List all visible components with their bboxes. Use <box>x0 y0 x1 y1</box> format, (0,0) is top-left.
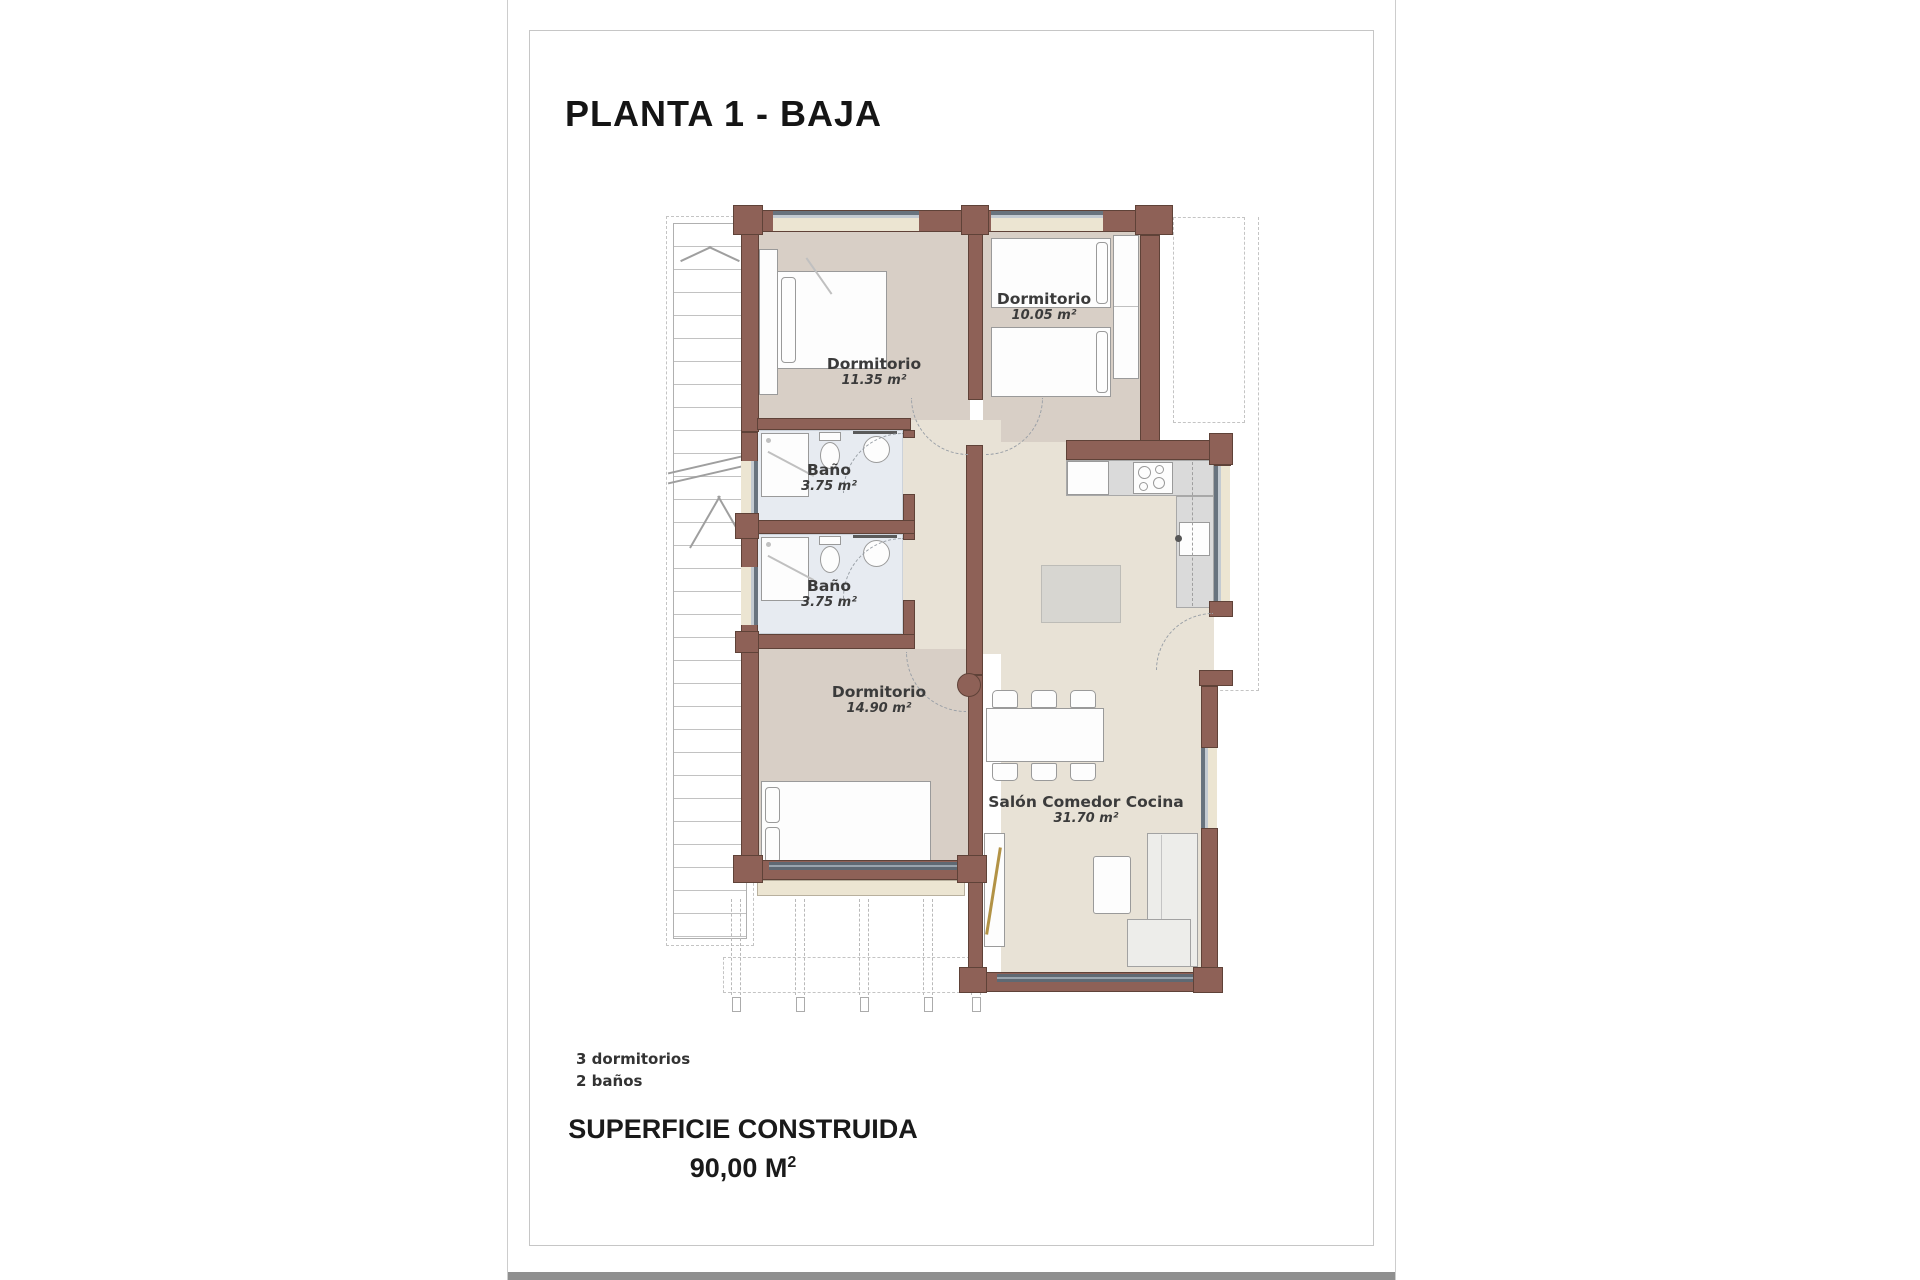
chair <box>1070 690 1096 708</box>
kitchen-island <box>1041 565 1121 623</box>
bathroom-wall <box>903 600 915 635</box>
kitchen-top-wall <box>1066 440 1216 460</box>
pergola-post <box>796 997 805 1012</box>
terrace-outline <box>1173 217 1245 423</box>
pergola-post <box>972 997 981 1012</box>
corner-post <box>1193 967 1223 993</box>
summary-dormitorios: 3 dormitorios <box>576 1048 690 1070</box>
room-label-bano-2: Baño 3.75 m² <box>801 577 857 611</box>
room-label-salon: Salón Comedor Cocina 31.70 m² <box>988 793 1184 827</box>
window-sill <box>757 880 965 896</box>
pillow <box>765 827 780 863</box>
counter-center-line <box>1192 462 1193 606</box>
room-label-bano-1: Baño 3.75 m² <box>801 461 857 495</box>
dormitorio-1-bottom-wall <box>757 418 911 430</box>
rooms-summary: 3 dormitorios 2 baños <box>576 1048 690 1092</box>
room-name: Baño <box>801 461 857 479</box>
salon-right-wall <box>1201 828 1218 972</box>
chair <box>1031 763 1057 781</box>
sofa-chaise <box>1127 919 1191 967</box>
corner-post <box>959 967 987 993</box>
bathroom-divider-wall <box>741 520 915 534</box>
window <box>773 211 919 231</box>
bathroom-wall <box>903 430 915 438</box>
bed <box>761 781 931 865</box>
chair <box>1070 763 1096 781</box>
chair <box>1031 690 1057 708</box>
toilet-bowl <box>820 546 840 573</box>
room-area: 14.90 m² <box>832 701 926 717</box>
pillow <box>765 787 780 823</box>
chair <box>992 690 1018 708</box>
pillow <box>781 277 796 363</box>
wardrobe-door-line <box>1114 306 1138 307</box>
room-name: Baño <box>801 577 857 595</box>
wall-post <box>735 513 759 539</box>
toilet-tank <box>819 536 841 545</box>
room-name: Dormitorio <box>997 290 1091 308</box>
sliding-door-glazing <box>769 862 961 870</box>
corner-post <box>733 205 763 235</box>
shower-drain <box>766 542 771 547</box>
bed <box>991 327 1111 397</box>
kitchen-window <box>1214 466 1230 602</box>
pergola-post <box>924 997 933 1012</box>
exterior-wall-left <box>741 649 759 865</box>
room-area: 31.70 m² <box>988 811 1184 827</box>
dining-table <box>986 708 1104 762</box>
window <box>741 461 758 519</box>
window <box>741 567 758 625</box>
toilet-tank <box>819 432 841 441</box>
salon-left-wall <box>968 675 983 972</box>
bathroom-bottom-wall <box>741 634 915 649</box>
pergola-beam-outline <box>723 957 975 993</box>
room-area: 3.75 m² <box>801 479 857 495</box>
room-area: 11.35 m² <box>827 373 921 389</box>
corner-post <box>733 855 763 883</box>
pillow <box>1096 331 1108 393</box>
room-name: Dormitorio <box>827 355 921 373</box>
plan-sheet: PLANTA 1 - BAJA <box>507 0 1396 1280</box>
area-superscript: 2 <box>787 1154 796 1171</box>
shower-drain <box>766 438 771 443</box>
built-area-block: SUPERFICIE CONSTRUIDA 90,00 M2 <box>553 1112 933 1185</box>
corner-post <box>957 855 987 883</box>
summary-banos: 2 baños <box>576 1070 690 1092</box>
hall-wall <box>966 445 983 675</box>
burner <box>1139 482 1148 491</box>
salon-window <box>1201 748 1217 828</box>
coffee-table <box>1093 856 1131 914</box>
dormitorio-2-right-wall <box>1140 235 1160 442</box>
wall-post <box>735 631 759 653</box>
pergola-post <box>732 997 741 1012</box>
chair <box>992 763 1018 781</box>
sliding-door-glazing <box>997 974 1197 982</box>
floor-plan: Dormitorio 11.35 m² Dormitorio 10.05 m² … <box>661 205 1286 1020</box>
pillow <box>1096 242 1108 304</box>
room-label-dormitorio-3: Dormitorio 14.90 m² <box>832 683 926 717</box>
exterior-stairs <box>673 223 747 939</box>
faucet <box>1175 535 1182 542</box>
corner-post <box>961 205 989 235</box>
room-label-dormitorio-1: Dormitorio 11.35 m² <box>827 355 921 389</box>
pergola-post <box>860 997 869 1012</box>
burner <box>1138 466 1151 479</box>
fridge <box>1067 461 1109 495</box>
room-name: Dormitorio <box>832 683 926 701</box>
exterior-wall-left <box>741 210 759 432</box>
window <box>991 211 1103 231</box>
roof-overhang-line <box>1215 690 1259 691</box>
burner <box>1153 477 1165 489</box>
room-area: 3.75 m² <box>801 595 857 611</box>
wardrobe <box>1113 235 1139 379</box>
corner-post <box>1209 433 1233 465</box>
corner-post <box>1135 205 1173 235</box>
page-bottom-bar <box>508 1272 1395 1280</box>
room-area: 10.05 m² <box>997 308 1091 324</box>
built-area-value: 90,00 M2 <box>553 1146 933 1185</box>
area-number: 90,00 M <box>690 1153 788 1183</box>
mirror <box>853 535 897 538</box>
salon-right-wall <box>1201 686 1218 748</box>
kitchen-sink <box>1179 522 1210 556</box>
roof-overhang-line <box>1258 217 1259 691</box>
wardrobe <box>759 249 778 395</box>
room-label-dormitorio-2: Dormitorio 10.05 m² <box>997 290 1091 324</box>
bedroom-divider-wall <box>968 210 983 400</box>
built-area-label: SUPERFICIE CONSTRUIDA <box>553 1112 933 1146</box>
hall-floor <box>901 420 1001 654</box>
wall-jog <box>1199 670 1233 686</box>
page-title: PLANTA 1 - BAJA <box>565 92 882 136</box>
burner <box>1155 465 1164 474</box>
room-name: Salón Comedor Cocina <box>988 793 1184 811</box>
page-canvas: PLANTA 1 - BAJA <box>0 0 1920 1280</box>
